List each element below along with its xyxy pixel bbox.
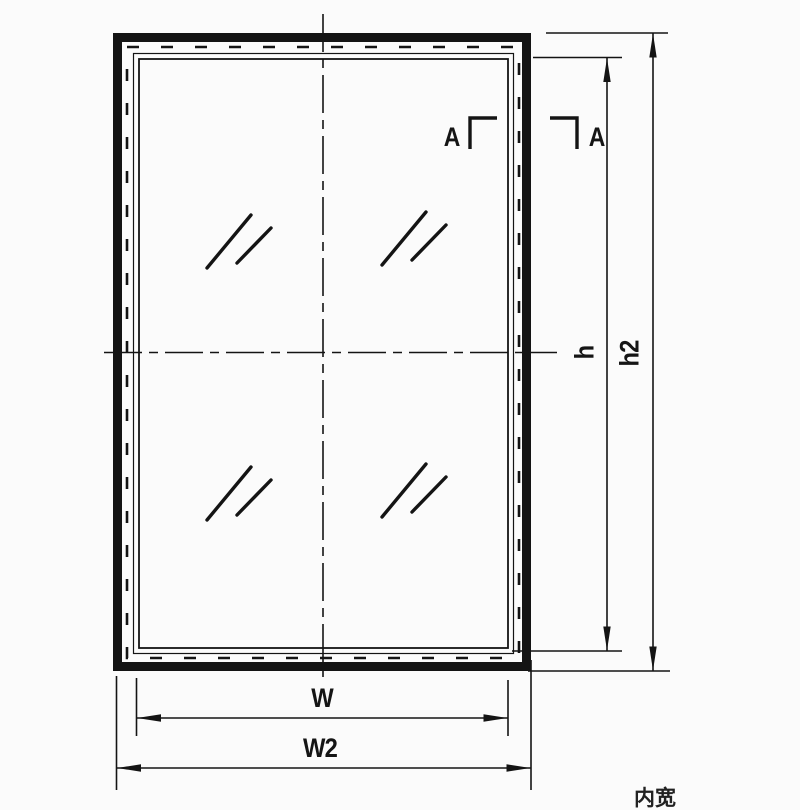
corner-note-cutoff: 内宽 xyxy=(634,788,676,809)
section-label-a-left: A xyxy=(440,124,464,151)
glass-mark-top-left xyxy=(207,215,271,268)
drawing-linework xyxy=(0,0,800,800)
dimension-label-w2: W2 xyxy=(289,735,351,762)
section-cut-bracket-left xyxy=(470,118,497,149)
dimension-label-w: W xyxy=(296,685,349,712)
section-cut-bracket-right xyxy=(550,118,577,149)
glass-mark-top-right xyxy=(382,212,446,265)
width-extension-lines xyxy=(117,660,532,790)
glass-mark-bottom-left xyxy=(207,467,271,520)
technical-drawing-canvas: A A h h2 W W2 内宽 xyxy=(0,0,800,800)
dimension-line-h2 xyxy=(649,33,656,671)
section-label-a-right: A xyxy=(585,124,609,151)
dimension-line-w2 xyxy=(117,764,532,771)
dimension-label-h: h xyxy=(572,339,599,365)
dimension-line-w xyxy=(137,714,509,721)
dimension-label-h2: h2 xyxy=(617,334,644,373)
glass-mark-bottom-right xyxy=(382,464,446,517)
